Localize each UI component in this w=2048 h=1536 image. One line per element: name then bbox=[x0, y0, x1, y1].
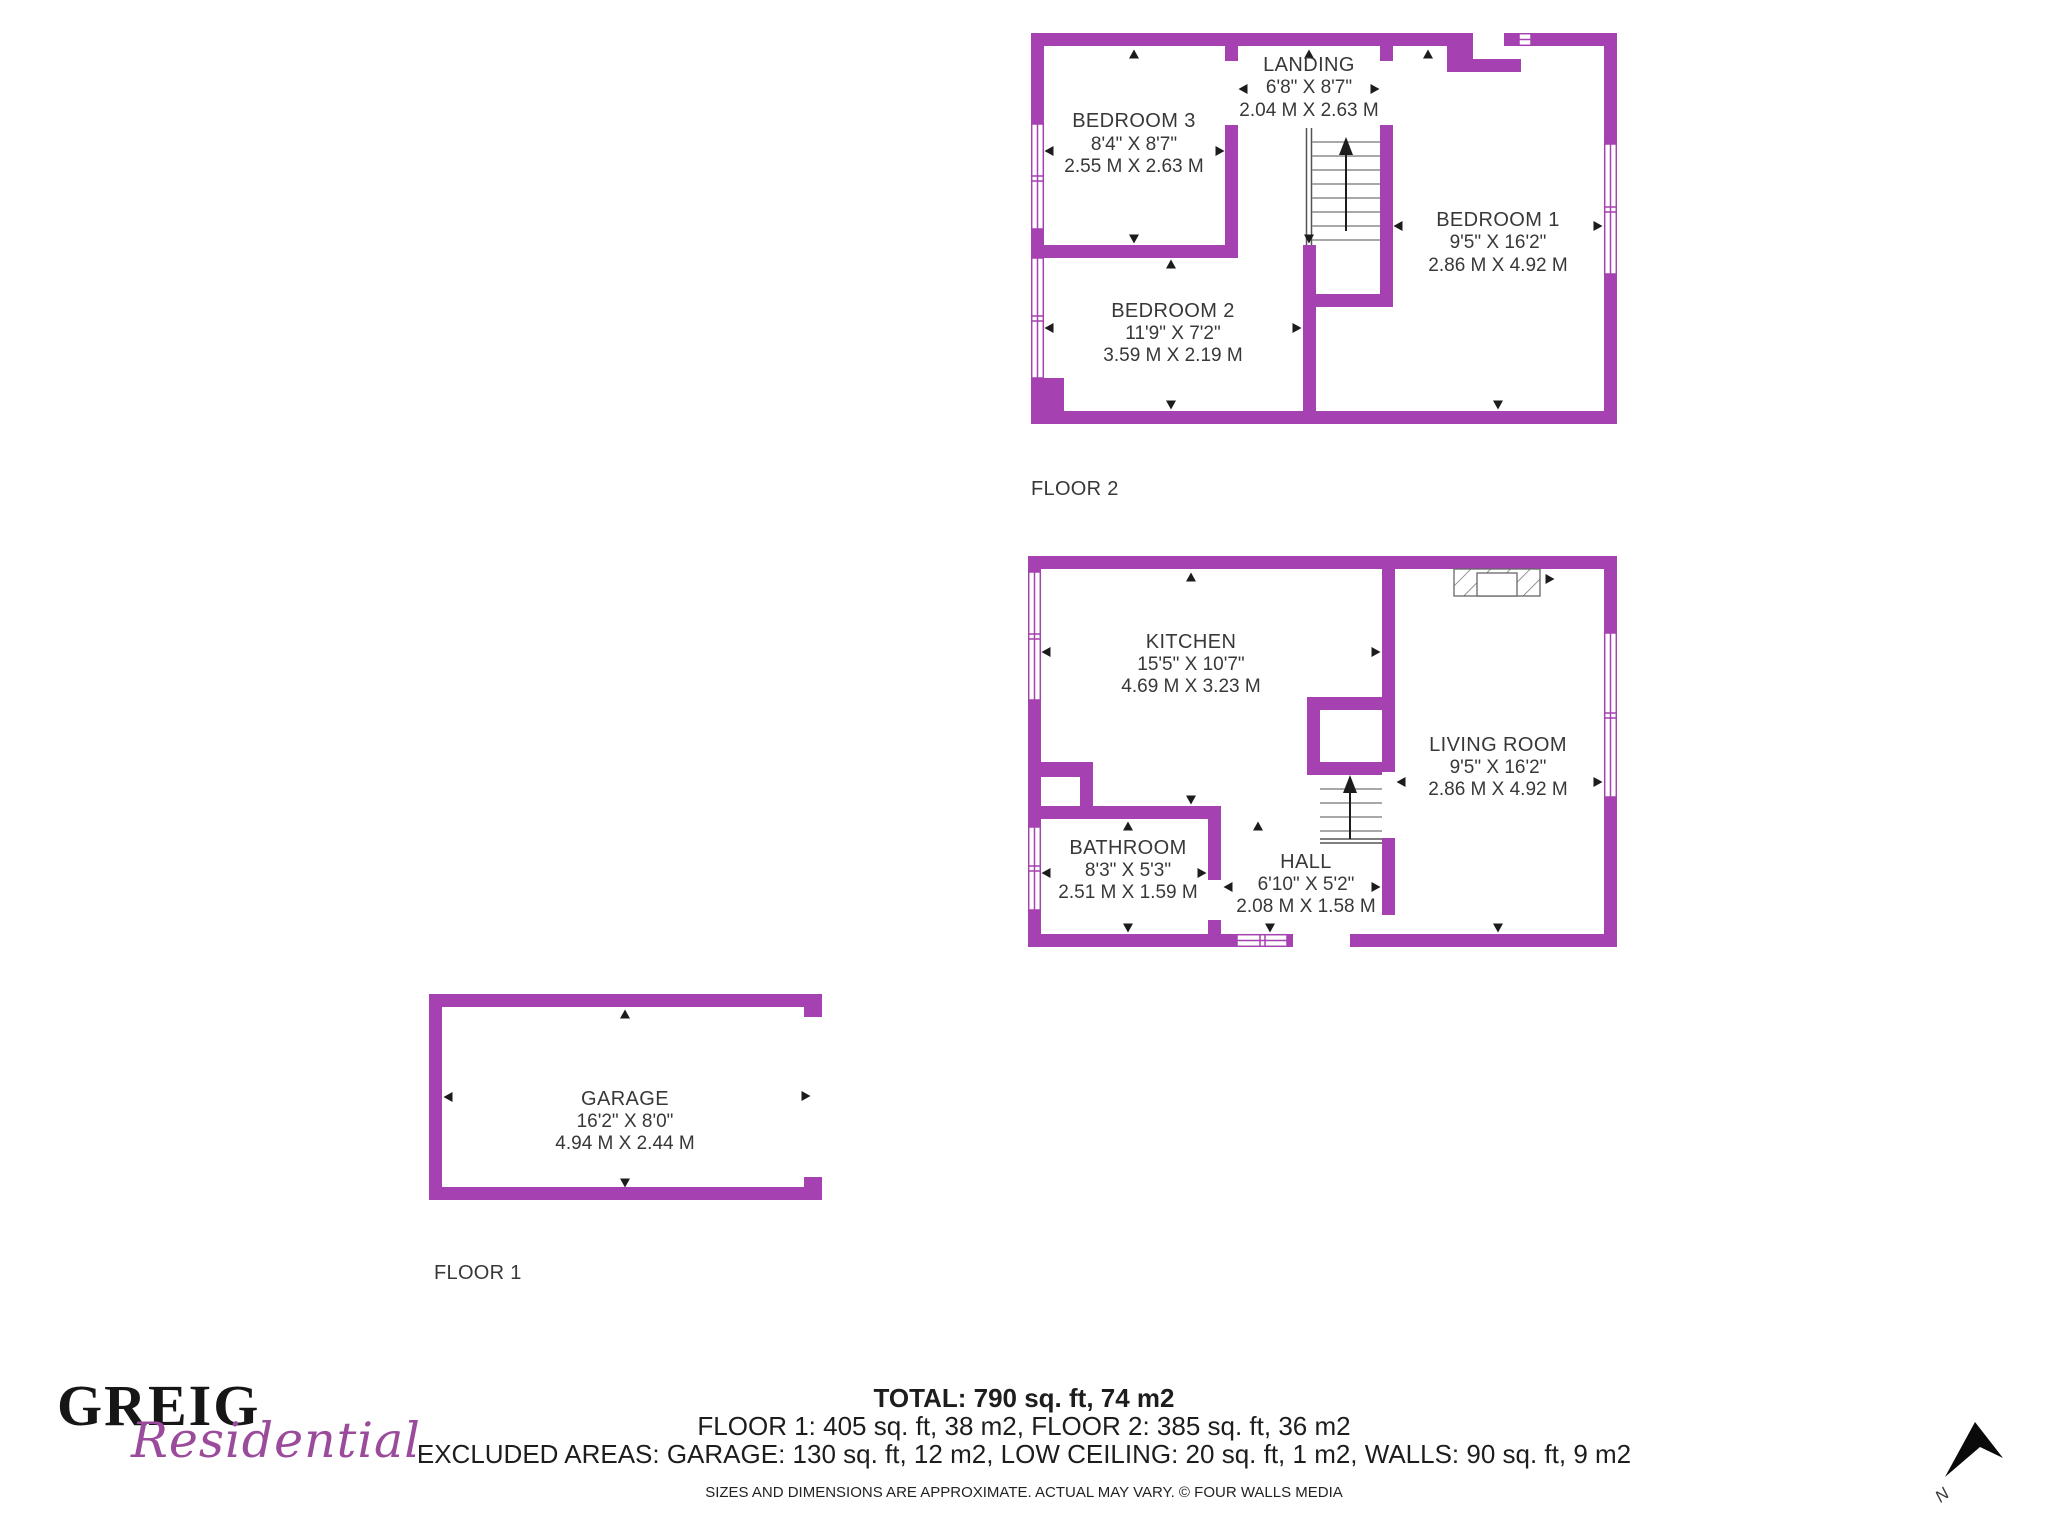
area-summary: TOTAL: 790 sq. ft, 74 m2 FLOOR 1: 405 sq… bbox=[0, 1384, 2048, 1501]
room-kitchen: KITCHEN 15'5" X 10'7" 4.69 M X 3.23 M bbox=[1121, 631, 1260, 697]
window-icon bbox=[1032, 124, 1044, 229]
garage-plan: GARAGE 16'2" X 8'0" 4.94 M X 2.44 M bbox=[429, 994, 822, 1200]
svg-text:2.08 M X 1.58 M: 2.08 M X 1.58 M bbox=[1236, 896, 1375, 917]
window-icon bbox=[1605, 633, 1617, 797]
north-arrow-icon bbox=[1945, 1422, 2003, 1477]
svg-text:BATHROOM: BATHROOM bbox=[1069, 837, 1186, 859]
svg-text:15'5" X 10'7": 15'5" X 10'7" bbox=[1137, 654, 1244, 675]
svg-text:16'2" X 8'0": 16'2" X 8'0" bbox=[577, 1111, 674, 1132]
room-bathroom: BATHROOM 8'3" X 5'3" 2.51 M X 1.59 M bbox=[1058, 837, 1197, 903]
svg-text:LANDING: LANDING bbox=[1263, 54, 1355, 76]
room-landing: LANDING 6'8" X 8'7" 2.04 M X 2.63 M bbox=[1239, 54, 1378, 121]
svg-text:BEDROOM 3: BEDROOM 3 bbox=[1072, 110, 1196, 132]
svg-text:2.86 M X 4.92 M: 2.86 M X 4.92 M bbox=[1428, 255, 1567, 276]
floor2-plan: BEDROOM 3 8'4" X 8'7" 2.55 M X 2.63 M LA… bbox=[1031, 33, 1617, 424]
floorplan-page: { "page": { "background": "#ffffff" }, "… bbox=[0, 0, 2048, 1536]
floor2-label: FLOOR 2 bbox=[1031, 478, 1119, 501]
room-garage: GARAGE 16'2" X 8'0" 4.94 M X 2.44 M bbox=[555, 1088, 694, 1154]
svg-text:KITCHEN: KITCHEN bbox=[1146, 631, 1237, 653]
window-icon bbox=[1519, 34, 1531, 46]
floor1-label: FLOOR 1 bbox=[434, 1262, 522, 1285]
svg-text:9'5" X 16'2": 9'5" X 16'2" bbox=[1450, 757, 1547, 778]
svg-text:3.59 M X 2.19 M: 3.59 M X 2.19 M bbox=[1103, 345, 1242, 366]
window-icon bbox=[1237, 935, 1287, 947]
stairs-up-arrow-icon bbox=[1339, 137, 1353, 155]
room-bedroom-3: BEDROOM 3 8'4" X 8'7" 2.55 M X 2.63 M bbox=[1064, 110, 1203, 177]
north-compass: N bbox=[1928, 1412, 2038, 1532]
floor-areas-text: FLOOR 1: 405 sq. ft, 38 m2, FLOOR 2: 385… bbox=[0, 1412, 2048, 1440]
svg-text:8'4" X 8'7": 8'4" X 8'7" bbox=[1091, 134, 1177, 155]
room-living-room: LIVING ROOM 9'5" X 16'2" 2.86 M X 4.92 M bbox=[1428, 734, 1567, 800]
chimney-breast bbox=[1454, 569, 1540, 596]
svg-text:8'3" X 5'3": 8'3" X 5'3" bbox=[1085, 860, 1171, 881]
svg-text:BEDROOM 1: BEDROOM 1 bbox=[1436, 209, 1560, 231]
room-bedroom-2: BEDROOM 2 11'9" X 7'2" 3.59 M X 2.19 M bbox=[1103, 300, 1242, 366]
svg-text:11'9" X 7'2": 11'9" X 7'2" bbox=[1125, 323, 1220, 344]
svg-text:HALL: HALL bbox=[1280, 851, 1332, 873]
svg-text:4.69 M X 3.23 M: 4.69 M X 3.23 M bbox=[1121, 676, 1260, 697]
svg-text:2.04 M X 2.63 M: 2.04 M X 2.63 M bbox=[1239, 100, 1378, 121]
window-icon bbox=[1029, 572, 1041, 700]
svg-text:4.94 M X 2.44 M: 4.94 M X 2.44 M bbox=[555, 1133, 694, 1154]
svg-text:6'8" X 8'7": 6'8" X 8'7" bbox=[1266, 77, 1352, 98]
svg-text:BEDROOM 2: BEDROOM 2 bbox=[1111, 300, 1235, 322]
staircase-up bbox=[1307, 128, 1381, 245]
room-bedroom-1: BEDROOM 1 9'5" X 16'2" 2.86 M X 4.92 M bbox=[1428, 209, 1567, 276]
window-icon bbox=[1029, 827, 1041, 910]
svg-text:LIVING ROOM: LIVING ROOM bbox=[1429, 734, 1567, 756]
svg-text:6'10" X 5'2": 6'10" X 5'2" bbox=[1258, 874, 1355, 895]
floor1-plan: KITCHEN 15'5" X 10'7" 4.69 M X 3.23 M LI… bbox=[1028, 556, 1617, 947]
svg-text:2.51 M X 1.59 M: 2.51 M X 1.59 M bbox=[1058, 882, 1197, 903]
svg-text:2.55 M X 2.63 M: 2.55 M X 2.63 M bbox=[1064, 156, 1203, 177]
svg-text:9'5" X 16'2": 9'5" X 16'2" bbox=[1450, 232, 1547, 253]
disclaimer-text: SIZES AND DIMENSIONS ARE APPROXIMATE. AC… bbox=[0, 1484, 2048, 1501]
window-icon bbox=[1032, 258, 1044, 378]
svg-text:2.86 M X 4.92 M: 2.86 M X 4.92 M bbox=[1428, 779, 1567, 800]
staircase-up bbox=[1320, 775, 1382, 843]
north-label: N bbox=[1931, 1483, 1953, 1506]
svg-text:GARAGE: GARAGE bbox=[581, 1088, 669, 1110]
total-area-text: TOTAL: 790 sq. ft, 74 m2 bbox=[0, 1384, 2048, 1412]
stairs-up-arrow-icon bbox=[1343, 775, 1357, 793]
excluded-areas-text: EXCLUDED AREAS: GARAGE: 130 sq. ft, 12 m… bbox=[0, 1440, 2048, 1468]
room-hall: HALL 6'10" X 5'2" 2.08 M X 1.58 M bbox=[1236, 851, 1375, 917]
window-icon bbox=[1605, 144, 1617, 274]
